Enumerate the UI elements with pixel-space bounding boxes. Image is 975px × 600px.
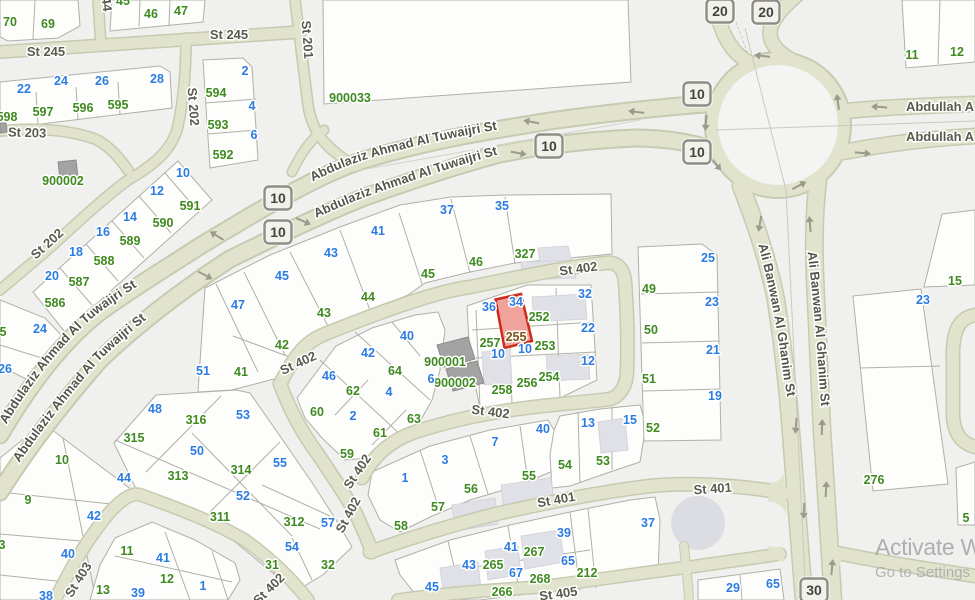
svg-text:2: 2 xyxy=(350,409,357,423)
svg-text:30: 30 xyxy=(806,582,822,598)
svg-text:13: 13 xyxy=(96,583,110,597)
svg-text:34: 34 xyxy=(509,295,523,309)
svg-text:52: 52 xyxy=(646,421,660,435)
svg-text:45: 45 xyxy=(275,269,289,283)
svg-text:46: 46 xyxy=(322,369,336,383)
svg-text:55: 55 xyxy=(522,469,536,483)
svg-text:Go to Settings t: Go to Settings t xyxy=(875,564,975,581)
svg-text:3: 3 xyxy=(442,453,449,467)
svg-text:46: 46 xyxy=(144,7,158,21)
svg-text:5: 5 xyxy=(0,325,7,339)
svg-text:20: 20 xyxy=(45,269,59,283)
svg-text:54: 54 xyxy=(285,540,299,554)
svg-text:590: 590 xyxy=(153,216,174,230)
svg-text:22: 22 xyxy=(17,82,31,96)
svg-text:43: 43 xyxy=(317,306,331,320)
svg-text:7: 7 xyxy=(492,435,499,449)
svg-text:44: 44 xyxy=(361,290,375,304)
svg-text:St 201: St 201 xyxy=(299,20,317,59)
svg-text:13: 13 xyxy=(581,416,595,430)
svg-text:12: 12 xyxy=(581,354,595,368)
svg-text:42: 42 xyxy=(361,346,375,360)
svg-text:40: 40 xyxy=(400,329,414,343)
svg-text:65: 65 xyxy=(766,577,780,591)
svg-text:70: 70 xyxy=(3,15,17,29)
svg-text:32: 32 xyxy=(578,287,592,301)
svg-text:53: 53 xyxy=(596,454,610,468)
svg-text:900002: 900002 xyxy=(434,376,476,390)
svg-text:4: 4 xyxy=(249,99,256,113)
svg-text:19: 19 xyxy=(708,389,722,403)
svg-text:55: 55 xyxy=(273,456,287,470)
svg-text:43: 43 xyxy=(462,558,476,572)
svg-text:14: 14 xyxy=(123,210,137,224)
svg-text:65: 65 xyxy=(561,554,575,568)
svg-text:327: 327 xyxy=(515,247,536,261)
svg-text:900002: 900002 xyxy=(42,174,84,188)
svg-text:52: 52 xyxy=(236,489,250,503)
svg-text:255: 255 xyxy=(506,330,527,344)
svg-text:35: 35 xyxy=(495,199,509,213)
svg-text:54: 54 xyxy=(558,458,572,472)
svg-text:64: 64 xyxy=(388,364,402,378)
svg-text:St 245: St 245 xyxy=(210,27,248,42)
svg-text:St 401: St 401 xyxy=(693,480,732,498)
svg-text:37: 37 xyxy=(440,203,454,217)
svg-text:2: 2 xyxy=(242,64,249,78)
svg-text:41: 41 xyxy=(504,540,518,554)
svg-text:4: 4 xyxy=(386,385,393,399)
svg-text:11: 11 xyxy=(120,544,133,558)
svg-text:Abdullah A: Abdullah A xyxy=(906,99,975,114)
svg-text:253: 253 xyxy=(535,339,556,353)
svg-text:26: 26 xyxy=(0,362,12,376)
svg-text:11: 11 xyxy=(905,48,918,62)
svg-text:26: 26 xyxy=(95,74,109,88)
svg-text:63: 63 xyxy=(407,412,421,426)
svg-text:St 203: St 203 xyxy=(8,124,47,140)
svg-text:5: 5 xyxy=(963,511,970,525)
svg-text:45: 45 xyxy=(425,580,439,594)
svg-text:6: 6 xyxy=(428,372,435,386)
svg-text:10: 10 xyxy=(689,86,705,102)
svg-text:67: 67 xyxy=(509,566,523,580)
svg-text:212: 212 xyxy=(577,566,598,580)
svg-text:598: 598 xyxy=(0,110,17,124)
svg-text:40: 40 xyxy=(61,547,75,561)
svg-text:38: 38 xyxy=(39,589,53,600)
svg-text:313: 313 xyxy=(168,469,189,483)
svg-text:36: 36 xyxy=(482,300,496,314)
svg-text:45: 45 xyxy=(421,267,435,281)
svg-text:311: 311 xyxy=(210,510,230,524)
svg-text:312: 312 xyxy=(284,515,305,529)
svg-text:268: 268 xyxy=(530,572,551,586)
svg-text:24: 24 xyxy=(54,74,68,88)
svg-text:12: 12 xyxy=(150,184,164,198)
svg-text:24: 24 xyxy=(33,322,47,336)
svg-text:10: 10 xyxy=(518,342,532,356)
svg-text:39: 39 xyxy=(557,526,571,540)
svg-text:10: 10 xyxy=(176,166,190,180)
svg-text:42: 42 xyxy=(275,338,289,352)
svg-text:59: 59 xyxy=(340,447,354,461)
svg-text:316: 316 xyxy=(186,413,207,427)
svg-text:258: 258 xyxy=(492,383,513,397)
svg-text:62: 62 xyxy=(346,384,360,398)
svg-text:596: 596 xyxy=(73,101,94,115)
svg-text:276: 276 xyxy=(864,473,885,487)
svg-text:56: 56 xyxy=(464,482,478,496)
svg-text:10: 10 xyxy=(689,144,705,160)
svg-text:587: 587 xyxy=(69,275,90,289)
svg-text:43: 43 xyxy=(324,246,338,260)
svg-text:57: 57 xyxy=(321,516,335,530)
svg-text:254: 254 xyxy=(539,370,560,384)
svg-text:St 245: St 245 xyxy=(27,44,65,59)
svg-text:12: 12 xyxy=(160,572,174,586)
svg-text:900001: 900001 xyxy=(424,355,466,369)
svg-text:39: 39 xyxy=(131,586,145,600)
svg-text:53: 53 xyxy=(236,408,250,422)
svg-text:46: 46 xyxy=(469,255,483,269)
svg-text:10: 10 xyxy=(541,138,557,154)
svg-text:10: 10 xyxy=(55,453,69,467)
svg-text:48: 48 xyxy=(148,402,162,416)
svg-text:314: 314 xyxy=(231,463,252,477)
svg-text:58: 58 xyxy=(394,519,408,533)
svg-text:588: 588 xyxy=(94,254,115,268)
svg-text:57: 57 xyxy=(431,500,445,514)
svg-text:31: 31 xyxy=(265,558,279,572)
svg-text:593: 593 xyxy=(208,118,229,132)
svg-text:41: 41 xyxy=(234,365,248,379)
svg-text:32: 32 xyxy=(321,558,335,572)
svg-text:3: 3 xyxy=(0,538,6,552)
svg-text:44: 44 xyxy=(117,471,131,485)
svg-text:6: 6 xyxy=(251,128,258,142)
svg-text:266: 266 xyxy=(492,585,513,599)
svg-text:St 202: St 202 xyxy=(185,87,203,126)
svg-text:594: 594 xyxy=(206,86,227,100)
svg-text:29: 29 xyxy=(726,581,740,595)
svg-text:69: 69 xyxy=(41,17,55,31)
svg-text:22: 22 xyxy=(581,321,595,335)
svg-text:592: 592 xyxy=(213,148,234,162)
svg-text:28: 28 xyxy=(150,72,164,86)
svg-text:25: 25 xyxy=(701,251,715,265)
svg-text:267: 267 xyxy=(524,545,545,559)
svg-text:15: 15 xyxy=(623,413,637,427)
svg-text:45: 45 xyxy=(116,0,130,8)
svg-text:47: 47 xyxy=(174,4,188,18)
svg-text:20: 20 xyxy=(758,4,774,20)
svg-text:41: 41 xyxy=(371,224,385,238)
svg-text:Abdullah A: Abdullah A xyxy=(906,129,975,144)
svg-text:1: 1 xyxy=(402,471,409,485)
svg-text:37: 37 xyxy=(641,516,655,530)
svg-text:10: 10 xyxy=(270,190,286,206)
svg-text:23: 23 xyxy=(916,293,930,307)
svg-text:51: 51 xyxy=(196,364,210,378)
svg-text:41: 41 xyxy=(156,551,170,565)
svg-text:252: 252 xyxy=(529,310,550,324)
svg-text:47: 47 xyxy=(231,298,245,312)
svg-text:51: 51 xyxy=(642,372,656,386)
svg-text:21: 21 xyxy=(706,343,720,357)
svg-text:15: 15 xyxy=(948,274,962,288)
svg-text:1: 1 xyxy=(200,579,207,593)
svg-text:12: 12 xyxy=(950,45,964,59)
svg-text:315: 315 xyxy=(124,431,145,445)
svg-text:40: 40 xyxy=(536,422,550,436)
svg-text:16: 16 xyxy=(96,225,110,239)
svg-text:50: 50 xyxy=(190,444,204,458)
svg-text:591: 591 xyxy=(180,199,201,213)
svg-text:60: 60 xyxy=(310,405,324,419)
svg-text:61: 61 xyxy=(373,426,387,440)
svg-text:10: 10 xyxy=(491,347,505,361)
svg-text:597: 597 xyxy=(33,105,54,119)
svg-text:265: 265 xyxy=(483,558,504,572)
svg-text:10: 10 xyxy=(270,224,286,240)
svg-text:589: 589 xyxy=(120,234,141,248)
svg-text:42: 42 xyxy=(87,509,101,523)
svg-text:23: 23 xyxy=(705,295,719,309)
svg-text:900033: 900033 xyxy=(329,91,371,105)
svg-text:49: 49 xyxy=(642,282,656,296)
svg-text:Activate Wi: Activate Wi xyxy=(875,534,975,560)
svg-text:50: 50 xyxy=(644,323,658,337)
svg-text:18: 18 xyxy=(69,245,83,259)
svg-text:256: 256 xyxy=(517,376,538,390)
svg-text:20: 20 xyxy=(712,3,728,19)
svg-text:595: 595 xyxy=(108,98,129,112)
svg-text:9: 9 xyxy=(25,493,32,507)
svg-text:586: 586 xyxy=(45,296,66,310)
